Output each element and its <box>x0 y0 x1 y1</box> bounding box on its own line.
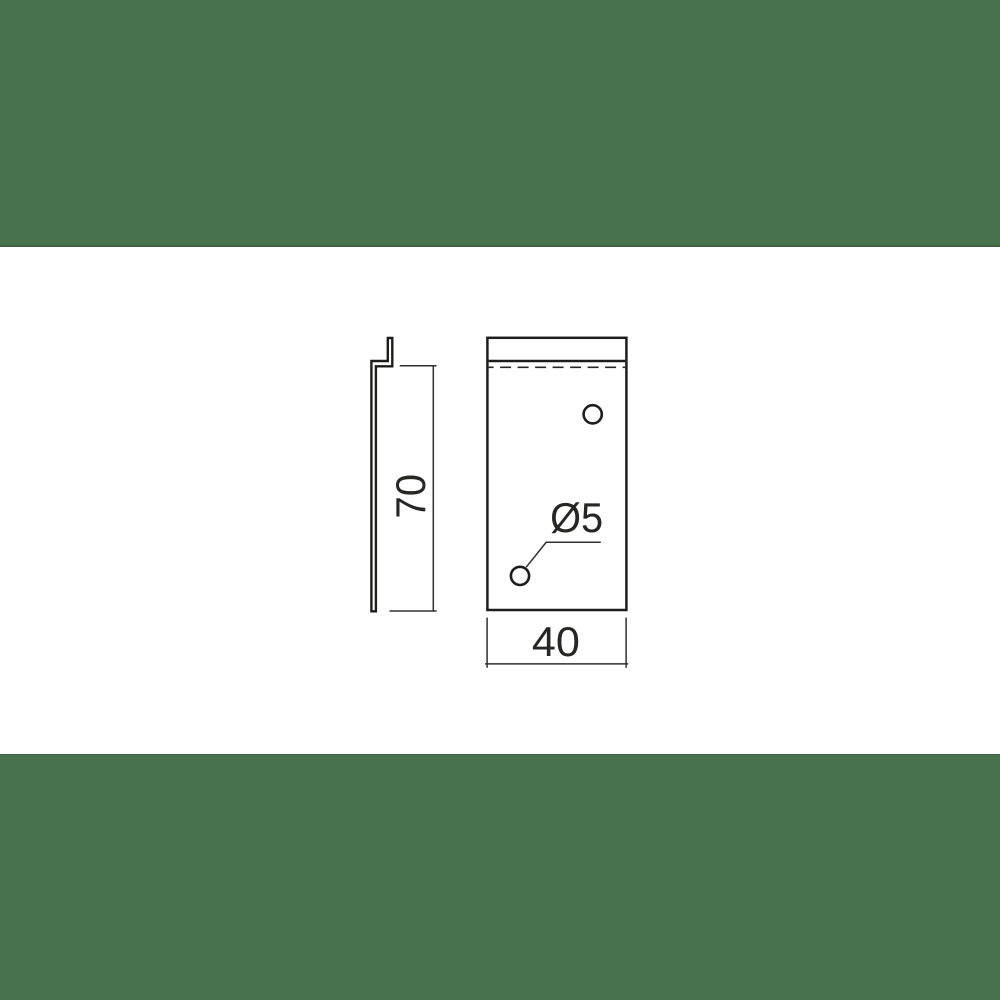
svg-text:40: 40 <box>532 618 580 665</box>
svg-text:Ø5: Ø5 <box>550 494 603 541</box>
svg-text:70: 70 <box>387 474 434 519</box>
